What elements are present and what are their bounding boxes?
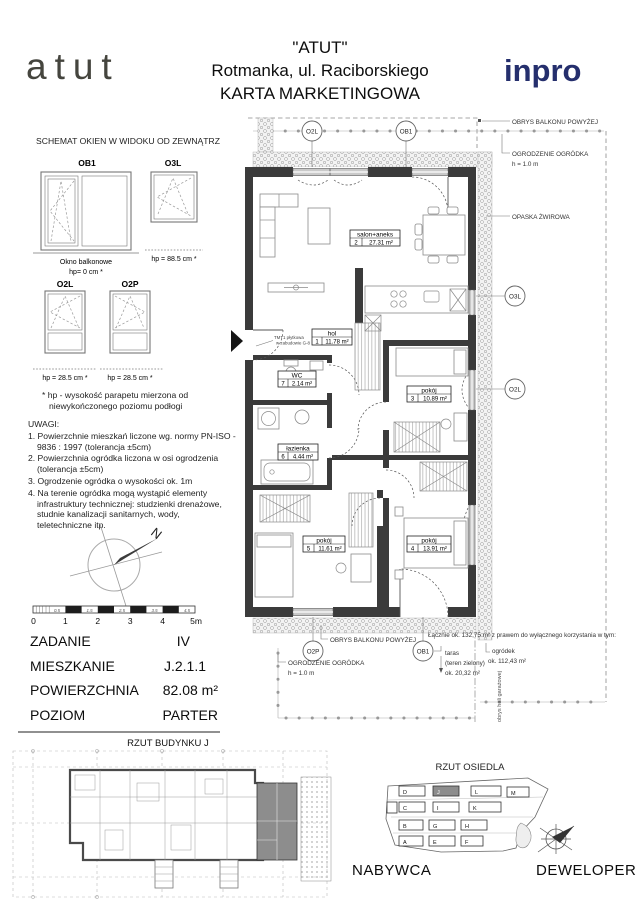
pokoj3-name: pokój [421,388,436,395]
building-c: C [403,806,407,812]
scale-tick-0: 0 [31,616,36,626]
building-g: G [433,824,437,830]
marker-top-ob1: OB1 [400,128,413,135]
compass-north-label: N [148,525,165,543]
developer-label: DEWELOPER [536,862,636,879]
obrys-balkonu-label-top: OBRYS BALKONU POWYŻEJ [512,117,598,126]
apartment-info-table: ZADANIE IV MIESZKANIE J.2.1.1 POWIERZCHN… [30,629,218,727]
pokoj4-area: 13.91 m² [423,546,447,552]
ogrodek-label: ogródek [492,648,516,655]
wc-name: WC [292,373,303,380]
o2p-hp: hp = 28.5 cm * [107,375,153,382]
info-row-powierzchnia: POWIERZCHNIA 82.08 m² [30,678,218,703]
pokoj5-area: 11.61 m² [318,546,341,552]
scale-bar: 0.5 1.5 2.5 3.5 4.5 0 1 2 3 4 5m [30,600,218,628]
building-l: L [475,790,478,796]
building-e: E [433,840,437,846]
info-label-zadanie: ZADANIE [30,633,91,649]
o2l-code: O2L [57,279,74,289]
entry-meter-note: TMT1 płytkowa w zabudowie G-8 [256,335,310,346]
building-j: J [437,790,440,796]
info-row-poziom: POZIOM PARTER [30,703,218,728]
uwagi-item-2: 2. Powierzchnia ogródka liczona w osi og… [28,453,236,475]
info-row-mieszkanie: MIESZKANIE J.2.1.1 [30,654,218,679]
hp-footnote-line2: niewykończonego poziomu podłogi [42,401,222,412]
compass: N [62,518,172,608]
ogrodek-area: ok. 112,43 m² [488,658,526,665]
info-label-poziom: POZIOM [30,707,85,723]
ogrodzenie-label-bottom: OGRODZENIE OGRÓDKA [288,658,365,667]
salon-area: 27.31 m² [369,240,393,246]
floor-plan: TMT1 płytkowa w zabudowie G-8 salon+anek… [228,108,637,740]
salon-name: salon+aneks [357,232,393,239]
estate-compass-icon [530,818,580,860]
scale-minor-45: 4.5 [184,608,191,613]
scale-minor-25: 2.5 [118,608,126,613]
info-value-poziom: PARTER [163,707,219,723]
title-line-2: Rotmanka, ul. Raciborskiego [150,59,490,82]
marketing-card-page: atut "ATUT" Rotmanka, ul. Raciborskiego … [0,0,637,901]
pokoj3-area: 10.89 m² [423,396,447,402]
building-m: M [511,791,516,797]
atut-logo: atut [26,46,120,88]
title-line-3: KARTA MARKETINGOWA [150,82,490,105]
obrys-hali-label: obrys hali garażowej [497,671,503,722]
room-label-hol: hol 1 11.78 m² [312,329,352,345]
room-label-pokoj4: pokój 4 13.91 m² [407,536,451,552]
scale-minor-35: 3.5 [151,608,158,613]
window-schematics-title: SCHEMAT OKIEN W WIDOKU OD ZEWNĄTRZ [28,136,228,146]
taras-type: (teren zielony) [445,660,485,667]
tmt-note-line2: w zabudowie G-8 [276,341,310,346]
o2p-code: O2P [121,279,138,289]
room-label-wc: WC 7 2.14 m² [278,371,316,387]
window-schematics: OB1 Okno balkonowe hp= 0 cm * O3L hp = 8… [25,150,230,393]
marker-bottom-ob1: OB1 [417,648,430,655]
scale-minor-15: 1.5 [86,608,93,613]
room-label-pokoj5: pokój 5 11.61 m² [303,536,345,552]
estate-plan-title: RZUT OSIEDLA [410,762,530,773]
inpro-logo: inpro [504,53,582,89]
building-k: K [473,806,477,812]
scale-tick-3: 3 [128,616,133,626]
lacznie-note: Łącznie ok. 132,75 m² z prawem do wyłącz… [428,632,616,639]
info-label-mieszkanie: MIESZKANIE [30,658,115,674]
building-d: D [403,790,407,796]
opaska-zwirowa-label: OPASKA ŻWIROWA [512,212,571,221]
info-value-mieszkanie: J.2.1.1 [164,658,206,674]
lazienka-name: łazienka [286,446,310,453]
ob1-code: OB1 [78,158,96,168]
buyer-label: NABYWCA [352,862,431,879]
o3l-code: O3L [165,158,182,168]
tmt-note-line1: TMT1 płytkowa [274,335,304,340]
info-value-powierzchnia: 82.08 m² [163,682,218,698]
ob1-caption: Okno balkonowe [60,259,112,266]
building-outline [70,770,263,888]
building-plan-title: RZUT BUDYNKU J [127,738,209,749]
taras-area: ok. 20,32 m² [445,670,480,677]
wc-area: 2.14 m² [292,381,312,387]
building-a: A [403,840,407,846]
title-line-1: "ATUT" [150,36,490,59]
lazienka-area: 4.44 m² [293,454,313,460]
hol-area: 11.78 m² [325,339,348,345]
hp-footnote-line1: * hp - wysokość parapetu mierzona od [42,390,222,401]
building-plan: RZUT BUDYNKU J [5,735,335,901]
uwagi-notes: UWAGI: 1. Powierzchnie mieszkań liczone … [28,419,236,531]
bottom-annotations: Łącznie ok. 132,75 m² z prawem do wyłącz… [278,625,616,722]
hp-footnote: * hp - wysokość parapetu mierzona od nie… [42,390,222,412]
uwagi-title: UWAGI: [28,419,236,430]
info-label-powierzchnia: POWIERZCHNIA [30,682,139,698]
obrys-balkonu-label-bottom: OBRYS BALKONU POWYŻEJ [330,635,416,644]
marker-bottom-o2p: O2P [307,648,320,655]
scale-minor-05: 0.5 [54,608,61,613]
right-annotations: OBRYS BALKONU POWYŻEJ OGRODZENIE OGRÓDKA… [478,117,598,221]
pokoj4-name: pokój [421,538,436,545]
ogrodzenie-label-top: OGRODZENIE OGRÓDKA [512,149,589,158]
building-b: B [403,824,407,830]
pokoj5-name: pokój [316,538,331,545]
marker-right-o2l: O2L [509,386,521,393]
info-row-zadanie: ZADANIE IV [30,629,218,654]
scale-tick-2: 2 [95,616,100,626]
room-label-salon: salon+aneks 2 27.31 m² [350,230,400,246]
o3l-hp: hp = 88.5 cm * [151,256,197,263]
info-value-zadanie: IV [177,633,190,649]
window-diagram-o3l: O3L hp = 88.5 cm * [145,158,203,263]
scale-tick-4: 4 [160,616,165,626]
compass-needle [114,538,158,565]
window-diagram-o2l: O2L hp = 28.5 cm * [33,279,97,382]
scale-tick-5: 5m [190,616,202,626]
uwagi-item-1: 1. Powierzchnie mieszkań liczone wg. nor… [28,431,236,453]
entrance-arrow-icon [231,330,243,352]
estate-green-area [516,823,531,848]
ogrodzenie-height-bottom: h = 1.0 m [288,670,314,677]
scale-tick-1: 1 [63,616,68,626]
page-title: "ATUT" Rotmanka, ul. Raciborskiego KARTA… [150,36,490,105]
window-diagram-o2p: O2P hp = 28.5 cm * [100,279,164,382]
marker-top-o2l: O2L [306,128,318,135]
room-label-pokoj3: pokój 3 10.89 m² [407,386,451,402]
room-label-lazienka: łazienka 6 4.44 m² [278,444,318,460]
window-diagram-ob1: OB1 Okno balkonowe hp= 0 cm * [33,158,139,276]
ob1-hp: hp= 0 cm * [69,269,103,276]
terrace-garden-area [301,777,331,881]
taras-label: taras [445,650,459,657]
hol-name: hol [328,331,337,338]
ogrodzenie-height-top: h = 1.0 m [512,161,538,168]
uwagi-item-3: 3. Ogrodzenie ogródka o wysokości ok. 1m [28,476,236,487]
info-divider [18,731,220,733]
marker-right-o3l: O3L [509,293,521,300]
building-h: H [465,824,469,830]
o2l-hp: hp = 28.5 cm * [42,375,88,382]
